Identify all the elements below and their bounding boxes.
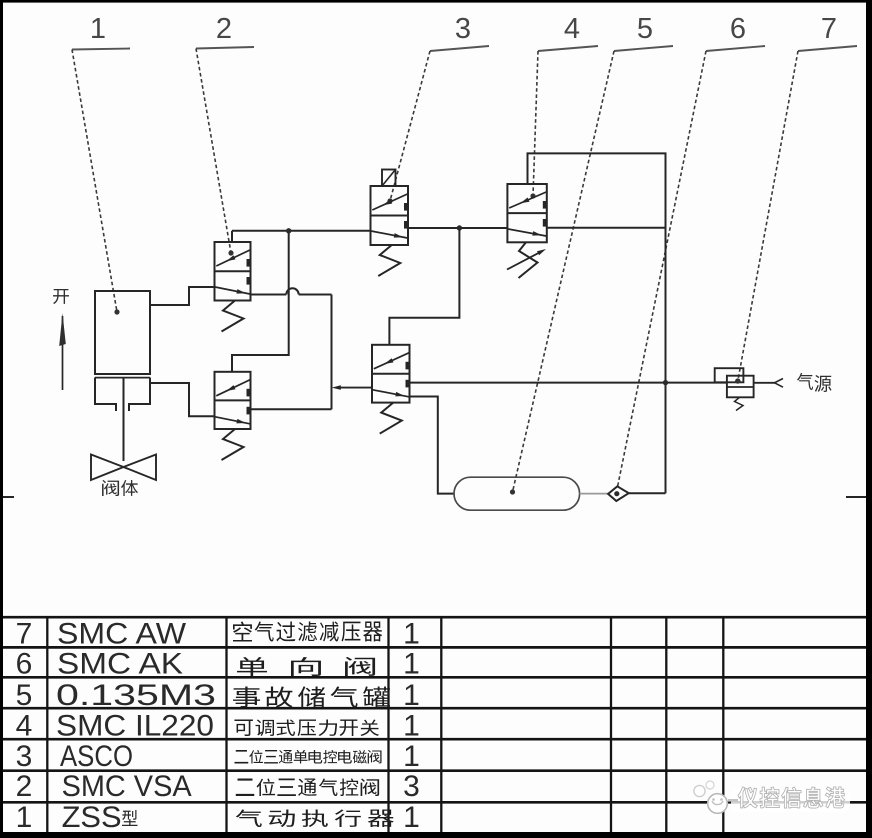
svg-text:1: 1 xyxy=(403,801,420,834)
svg-text:1: 1 xyxy=(403,710,420,743)
svg-text:5: 5 xyxy=(637,13,653,45)
svg-text:ZSS: ZSS xyxy=(62,801,122,834)
svg-text:6: 6 xyxy=(730,13,746,45)
svg-text:1: 1 xyxy=(16,801,33,834)
svg-text:1: 1 xyxy=(403,618,420,651)
svg-text:ASCO: ASCO xyxy=(60,740,133,773)
svg-text:3: 3 xyxy=(455,13,471,45)
svg-text:1: 1 xyxy=(403,679,420,712)
svg-text:1: 1 xyxy=(403,740,420,773)
svg-text:SMC AW: SMC AW xyxy=(57,618,187,651)
svg-text:SMC VSA: SMC VSA xyxy=(62,770,192,803)
svg-text:0.135M3: 0.135M3 xyxy=(56,679,216,712)
svg-text:7: 7 xyxy=(821,13,837,45)
svg-text:4: 4 xyxy=(564,13,580,45)
svg-text:2: 2 xyxy=(16,770,33,803)
svg-text:SMC IL220: SMC IL220 xyxy=(56,710,214,743)
svg-text:1: 1 xyxy=(90,13,106,45)
svg-text:7: 7 xyxy=(16,618,33,651)
svg-text:5: 5 xyxy=(16,679,33,712)
svg-text:1: 1 xyxy=(403,648,420,681)
svg-text:4: 4 xyxy=(16,710,33,743)
svg-text:2: 2 xyxy=(216,13,232,45)
svg-text:6: 6 xyxy=(16,648,33,681)
svg-text:SMC AK: SMC AK xyxy=(57,648,183,681)
svg-text:3: 3 xyxy=(16,740,33,773)
svg-text:3: 3 xyxy=(403,770,420,803)
